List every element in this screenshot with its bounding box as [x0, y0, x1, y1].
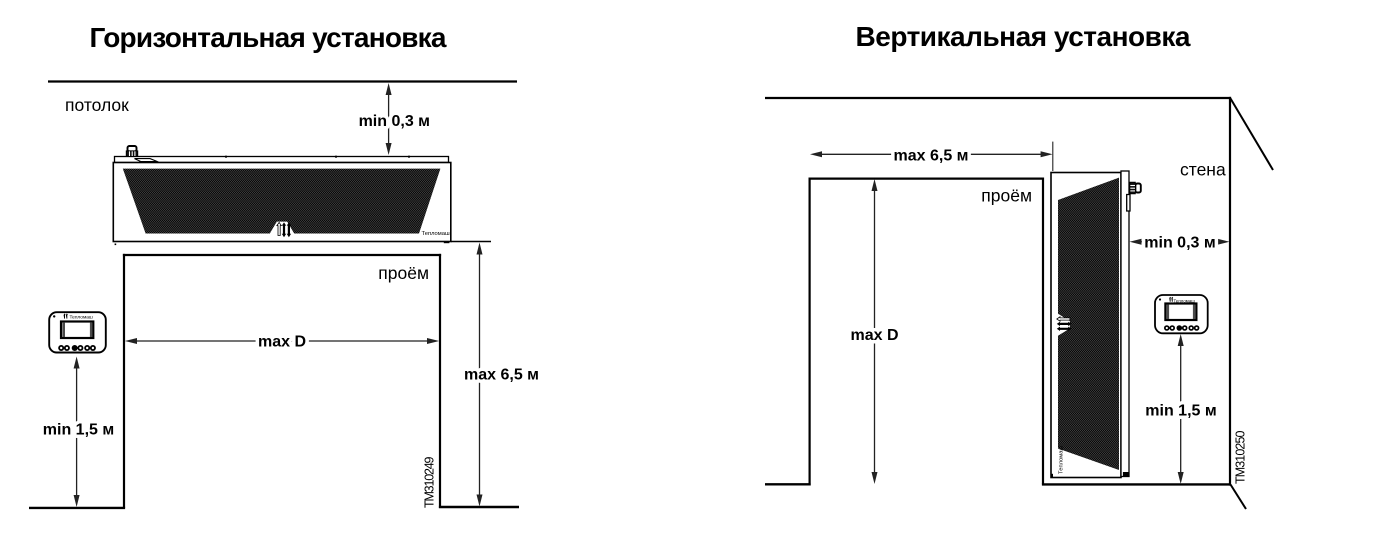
svg-text:min 1,5 м: min 1,5 м [43, 422, 114, 439]
svg-text:max 6,5 м: max 6,5 м [464, 367, 539, 384]
svg-text:Тепломаш: Тепломаш [1059, 446, 1065, 474]
svg-text:проём: проём [378, 263, 429, 283]
svg-text:max 6,5 м: max 6,5 м [894, 147, 969, 164]
svg-text:Тепломаш: Тепломаш [70, 315, 93, 321]
svg-text:min 1,5 м: min 1,5 м [1145, 403, 1216, 420]
svg-text:стена: стена [1180, 160, 1226, 180]
svg-text:Тепломаш: Тепломаш [422, 231, 450, 237]
svg-text:Горизонтальная установка: Горизонтальная установка [90, 22, 447, 53]
svg-text:max D: max D [258, 334, 306, 351]
svg-text:TM310249: TM310249 [423, 456, 437, 508]
svg-text:проём: проём [981, 186, 1032, 206]
svg-text:min 0,3 м: min 0,3 м [359, 113, 430, 130]
svg-text:TM310250: TM310250 [1234, 430, 1248, 484]
svg-text:max D: max D [850, 327, 898, 344]
svg-text:потолок: потолок [65, 95, 129, 115]
svg-text:min 0,3 м: min 0,3 м [1144, 234, 1215, 251]
svg-text:Вертикальная установка: Вертикальная установка [856, 21, 1191, 52]
